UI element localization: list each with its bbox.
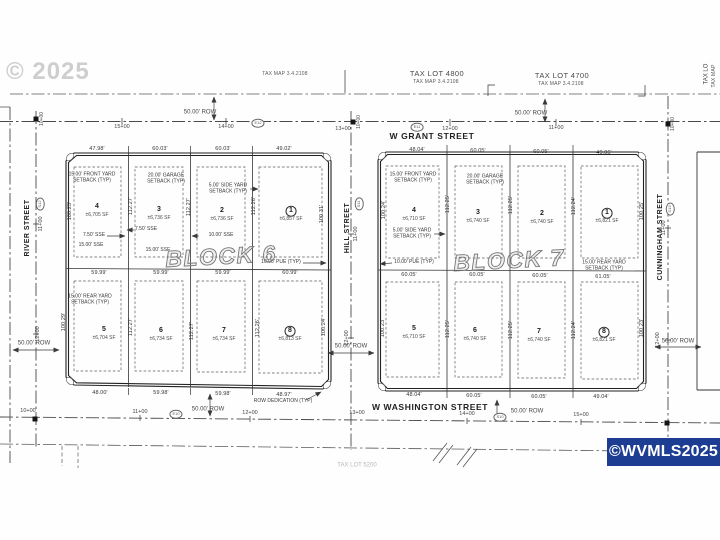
plat-map: TAX MAP 3.4.2108TAX LOT 4800TAX MAP 3.4.… <box>0 0 720 540</box>
lot-dimension: 49.04' <box>593 394 608 400</box>
lot-area: ±6,821 SF <box>595 219 618 225</box>
station-ref-oval: S12 <box>36 197 45 210</box>
lot-area: ±6,734 SF <box>149 337 172 343</box>
tax-lot-4800-label: TAX LOT 4800 <box>410 70 464 78</box>
lot-dimension: 60.05' <box>532 273 547 279</box>
lot-area: ±6,736 SF <box>147 216 170 222</box>
lot-dimension: 112.25' <box>445 320 451 338</box>
station-label: 14+00 <box>218 124 233 130</box>
lot-number: 3 <box>157 206 161 214</box>
station-label: 12+00 <box>344 330 350 345</box>
lot-dimension: 48.04' <box>409 147 424 153</box>
lot-dimension: 60.99' <box>282 270 297 276</box>
setback-note: 5.00' SIDE YARDSETBACK (TYP) <box>209 183 248 194</box>
lot-dimension: 60.05' <box>401 272 416 278</box>
lot-dimension: 100.29' <box>61 313 67 332</box>
street-name-hill: HILL STREET <box>344 203 352 253</box>
lot-dimension: 59.99' <box>215 270 230 276</box>
lot-area: ±6,740 SF <box>527 338 550 344</box>
easement-note: 10.00' PUE (TYP) <box>394 260 434 266</box>
lot-area: ±6,813 SF <box>278 337 301 343</box>
row-width-label: 50.00' ROW <box>184 110 217 117</box>
lot-number: 1 <box>602 208 613 219</box>
copyright-2025-watermark: © 2025 <box>6 58 90 86</box>
row-width-label: 50.00' ROW <box>192 407 225 414</box>
setback-note: 20.00' GARAGESETBACK (TYP) <box>147 173 185 184</box>
station-ref-oval: S13 <box>666 202 675 215</box>
lot-dimension: 100.25' <box>67 202 73 221</box>
lot-area: ±6,704 SF <box>92 336 115 342</box>
lot-number: 3 <box>476 209 480 217</box>
lot-area: ±6,857 SF <box>279 217 302 223</box>
setback-note: 20.00' GARAGESETBACK (TYP) <box>466 174 504 185</box>
tax-lot-4700-map-label: TAX MAP 3.4.2108 <box>538 82 584 88</box>
station-label: 11+00 <box>38 216 44 231</box>
station-label: 12+00 <box>655 332 661 347</box>
easement-note: 15.00' SSE <box>79 243 104 249</box>
lot-dimension: 60.03' <box>215 146 230 152</box>
lot-number: 6 <box>473 327 477 335</box>
lot-area: ±6,705 SF <box>85 213 108 219</box>
station-label: 12+00 <box>242 410 257 416</box>
station-label: 11+00 <box>132 409 147 415</box>
street-name-w-grant: W GRANT STREET <box>390 132 475 142</box>
lot-dimension: 49.06' <box>596 150 611 156</box>
lot-dimension: 100.23' <box>639 319 645 338</box>
street-name-cunningham: CUNNINGHAM STREET <box>657 194 665 281</box>
tax-lot-4800-map-label: TAX MAP 3.4.2108 <box>413 80 459 86</box>
row-width-label: 50.00' ROW <box>511 409 544 416</box>
lot-dimension: 60.05' <box>533 149 548 155</box>
lot-area: ±6,740 SF <box>530 220 553 226</box>
lot-number: 6 <box>159 327 163 335</box>
easement-note: 7.50' SSE <box>83 233 105 239</box>
lot-dimension: 112.26' <box>255 319 261 337</box>
lot-number: 1 <box>286 206 297 217</box>
block-title: BLOCK 6 <box>165 241 278 273</box>
lot-area: ±6,821 SF <box>592 338 615 344</box>
setback-note: 15.00' REAR YARDSETBACK (TYP) <box>582 260 626 271</box>
station-label: 10+00 <box>671 117 677 131</box>
easement-note: 10.00' SSE <box>209 233 234 239</box>
lot-dimension: 59.99' <box>153 270 168 276</box>
wvmls-watermark: ©WVMLS2025 <box>607 438 720 466</box>
station-ref-oval: E12 <box>251 119 264 128</box>
setback-note: 5.00' SIDE YARDSETBACK (TYP) <box>393 228 432 239</box>
lot-area: ±6,736 SF <box>210 217 233 223</box>
lot-dimension: 112.24' <box>571 321 577 339</box>
lot-number: 8 <box>599 327 610 338</box>
tax-lot-south-label: TAX LOT 5200 <box>337 463 376 470</box>
station-label: 15+00 <box>573 412 588 418</box>
lot-area: ±6,740 SF <box>463 337 486 343</box>
setback-note: 15.00' FRONT YARDSETBACK (TYP) <box>390 172 437 183</box>
station-label: 12+00 <box>35 326 41 341</box>
station-label: 11+00 <box>548 125 563 131</box>
station-ref-oval: E10 <box>169 410 182 419</box>
lot-dimension: 100.24' <box>381 201 387 220</box>
lot-dimension: 100.23' <box>380 319 386 338</box>
lot-number: 5 <box>102 326 106 334</box>
lot-dimension: 48.00' <box>92 390 107 396</box>
station-label: 13+00 <box>349 410 364 416</box>
easement-note: 7.50' SSE <box>135 227 157 233</box>
station-ref-oval: E11 <box>411 123 424 132</box>
lot-dimension: 48.04' <box>406 392 421 398</box>
lot-dimension: 49.02' <box>276 146 291 152</box>
lot-dimension: 112.27' <box>186 198 192 216</box>
lot-dimension: 112.25' <box>508 321 514 339</box>
lot-number: 2 <box>540 210 544 218</box>
lot-dimension: 112.26' <box>251 197 257 215</box>
setback-note: 15.00' FRONT YARDSETBACK (TYP) <box>69 172 116 183</box>
lot-dimension: 59.98' <box>215 391 230 397</box>
lot-dimension: 60.03' <box>152 146 167 152</box>
lot-number: 7 <box>222 327 226 335</box>
lot-number: 7 <box>537 328 541 336</box>
tax-lot-east-label: TAX LO <box>704 64 711 85</box>
lot-dimension: 100.31' <box>319 205 325 224</box>
lot-dimension: 112.27' <box>189 322 195 340</box>
lot-dimension: 112.25' <box>445 195 451 213</box>
setback-note: 15.00' REAR YARDSETBACK (TYP) <box>68 294 112 305</box>
lot-number: 2 <box>220 207 224 215</box>
lot-number: 8 <box>285 326 296 337</box>
row-width-label: 50.00' ROW <box>515 111 548 118</box>
station-label: 10+00 <box>357 115 363 129</box>
lot-dimension: 47.98' <box>89 146 104 152</box>
lot-dimension: 100.25' <box>639 202 645 221</box>
lot-dimension: 48.97' <box>276 392 291 398</box>
row-width-label: 50.00' ROW <box>662 339 695 346</box>
row-dedication-note: ROW DEDICATION (TYP) <box>254 399 313 405</box>
lot-dimension: 61.05' <box>595 274 610 280</box>
lot-dimension: 112.27' <box>128 318 134 336</box>
lot-dimension: 112.27' <box>128 197 134 215</box>
station-label: 12+00 <box>442 126 457 132</box>
lot-dimension: 59.98' <box>153 390 168 396</box>
tax-map-east-label: TAX MAP <box>712 65 718 88</box>
lot-dimension: 100.24' <box>321 318 327 337</box>
lot-area: ±6,734 SF <box>212 337 235 343</box>
lot-area: ±6,740 SF <box>466 219 489 225</box>
lot-area: ±6,710 SF <box>402 335 425 341</box>
station-ref-oval: S11 <box>355 198 364 211</box>
tax-lot-4700-label: TAX LOT 4700 <box>535 72 589 80</box>
station-ref-oval: S10 <box>493 413 506 422</box>
station-label: 13+00 <box>335 126 350 132</box>
lot-dimension: 60.05' <box>466 393 481 399</box>
lot-dimension: 60.05' <box>469 272 484 278</box>
row-width-label: 50.00' ROW <box>335 344 368 351</box>
lot-dimension: 112.24' <box>571 197 577 215</box>
station-label: 15+00 <box>114 124 129 130</box>
tax-map-west-label: TAX MAP 3.4.2108 <box>262 72 308 78</box>
station-label: 11+00 <box>353 226 359 241</box>
lot-number: 4 <box>412 207 416 215</box>
station-label: 11+00 <box>661 220 667 235</box>
station-label: 10+00 <box>20 408 35 414</box>
lot-number: 5 <box>412 325 416 333</box>
lot-dimension: 59.99' <box>91 270 106 276</box>
street-name-river: RIVER STREET <box>24 200 32 257</box>
lot-number: 4 <box>95 203 99 211</box>
lot-dimension: 60.05' <box>470 148 485 154</box>
station-label: 10+00 <box>40 112 46 126</box>
station-label: 14+00 <box>459 411 474 417</box>
lot-dimension: 60.05' <box>531 394 546 400</box>
lot-dimension: 112.25' <box>508 196 514 214</box>
lot-area: ±6,710 SF <box>402 217 425 223</box>
